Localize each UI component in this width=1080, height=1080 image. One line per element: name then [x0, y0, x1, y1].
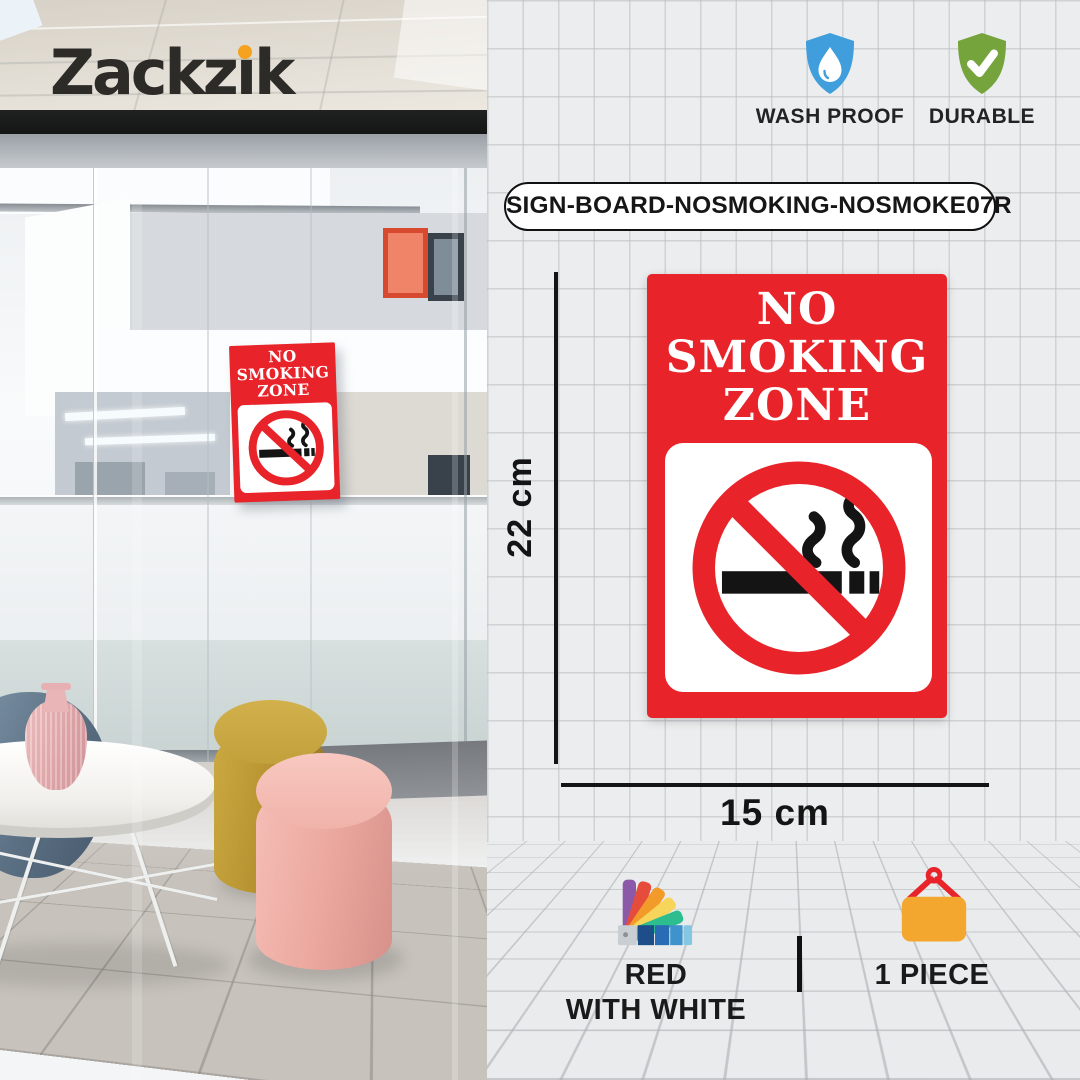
logo-text-before: Zackz	[50, 36, 236, 109]
no-smoking-icon	[692, 461, 906, 675]
sign-line3: ZONE	[647, 382, 947, 430]
pink-vase-ridges	[25, 700, 87, 790]
water-drop-shield-icon	[804, 32, 856, 96]
no-smoking-icon	[247, 409, 325, 487]
interior-window	[428, 233, 464, 301]
width-dimension-label: 15 cm	[675, 792, 875, 834]
spec-divider	[797, 936, 802, 992]
no-smoking-sign-on-glass: NO SMOKING ZONE	[229, 342, 340, 502]
sign-line2: SMOKING	[647, 334, 947, 382]
orange-poster	[383, 228, 428, 298]
ceiling-light	[0, 0, 43, 44]
no-smoking-sign-product: NO SMOKING ZONE	[647, 274, 947, 718]
glass-joint	[93, 168, 97, 764]
color-option-label: RED WITH WHITE	[536, 958, 776, 1028]
hanging-sign-icon	[895, 866, 973, 943]
pink-vase-lip	[41, 683, 71, 690]
glass-reflection	[452, 168, 458, 1080]
ceiling-light-patch	[394, 0, 487, 91]
sign-line1: NO	[647, 286, 947, 334]
product-showcase: NO SMOKING ZONE Zackzık	[0, 0, 1080, 1080]
sign-symbol-panel	[665, 443, 932, 692]
transom-band	[0, 134, 487, 168]
wash-proof-label: WASH PROOF	[755, 105, 905, 129]
durable-badge: DURABLE	[907, 32, 1057, 129]
logo-text-after: k	[254, 36, 292, 109]
wash-proof-badge: WASH PROOF	[755, 32, 905, 129]
sign-text: NO SMOKING ZONE	[647, 274, 947, 430]
ceiling-light-strip	[65, 407, 185, 421]
durable-label: DURABLE	[907, 105, 1057, 129]
check-shield-icon	[956, 32, 1008, 96]
brand-logo: Zackzık	[50, 42, 292, 104]
sign-symbol-panel	[237, 402, 334, 493]
height-dimension-label: 22 cm	[501, 426, 541, 588]
color-swatch-fan-icon	[617, 872, 693, 948]
black-header-beam	[0, 110, 487, 134]
color-option	[617, 872, 693, 953]
glass-joint	[207, 168, 209, 764]
color-line2: WITH WHITE	[536, 993, 776, 1028]
logo-letter-i: ı	[236, 42, 254, 104]
logo-orange-dot-icon	[238, 45, 252, 59]
height-dimension-line	[554, 272, 558, 764]
sign-text: NO SMOKING ZONE	[229, 342, 337, 401]
lifestyle-photo: NO SMOKING ZONE Zackzık	[0, 0, 487, 1080]
color-line1: RED	[536, 958, 776, 993]
quantity-option	[895, 866, 973, 948]
width-dimension-line	[561, 783, 989, 787]
quantity-label: 1 PIECE	[822, 958, 1042, 993]
ceiling-light-strip	[85, 434, 215, 446]
info-panel: WASH PROOF DURABLE SIGN-BOARD-NOSMOKING-…	[487, 0, 1080, 1080]
glass-joint	[464, 168, 467, 764]
glass-reflection	[132, 168, 142, 1080]
pink-pouf-top	[256, 753, 392, 829]
product-code-badge: SIGN-BOARD-NOSMOKING-NOSMOKE07R	[504, 182, 996, 231]
